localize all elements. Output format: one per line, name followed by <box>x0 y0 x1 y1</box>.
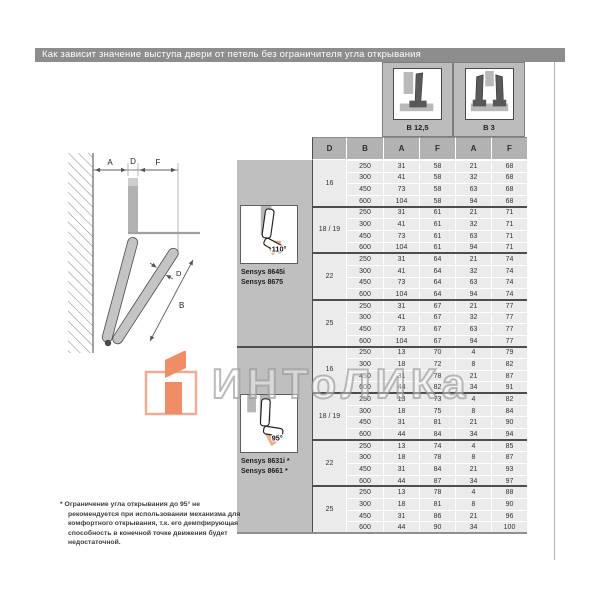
table-row: 3001872882 <box>347 358 527 370</box>
table-row: 25031672177 <box>347 300 527 312</box>
table-cell: 32 <box>456 218 492 230</box>
table-cell: 250 <box>347 253 384 265</box>
table-cell: 67 <box>420 300 456 312</box>
table-row: 30041613271 <box>347 218 527 230</box>
table-row: 45031812190 <box>347 416 527 428</box>
d-group-cell: 16 <box>312 160 347 207</box>
table-cell: 21 <box>456 416 492 428</box>
legend-label: B 3 <box>454 123 524 132</box>
table-cell: 63 <box>456 277 492 289</box>
table-cell: 32 <box>456 172 492 184</box>
table-cell: 63 <box>456 323 492 335</box>
hinge-models-95: Sensys 8631i * Sensys 8661 * <box>241 457 290 477</box>
table-row: 25031612171 <box>347 207 527 219</box>
table-cell: 250 <box>347 440 384 452</box>
table-cell: 75 <box>420 405 456 417</box>
table-cell: 300 <box>347 265 384 277</box>
table-cell: 31 <box>384 207 420 219</box>
table-row: 30041583268 <box>347 172 527 184</box>
table-cell: 73 <box>420 393 456 405</box>
page-margin-rule <box>554 62 555 560</box>
table-cell: 63 <box>456 183 492 195</box>
dim-label-f: F <box>156 158 161 167</box>
table-cell: 68 <box>492 160 527 172</box>
table-row: 2501370479 <box>347 347 527 359</box>
table-cell: 93 <box>492 463 527 475</box>
catalog-page: Как зависит значение выступа двери от пе… <box>0 0 600 600</box>
table-cell: 31 <box>384 463 420 475</box>
wall-hatch <box>68 153 93 353</box>
dim-label-d-top: D <box>130 157 136 166</box>
hinge-info-110: 110° Sensys 8645i Sensys 8675 <box>237 160 312 347</box>
table-cell: 64 <box>420 265 456 277</box>
table-cell: 84 <box>492 405 527 417</box>
table-cell: 18 <box>384 498 420 510</box>
table-cell: 67 <box>420 312 456 324</box>
group-separator <box>312 299 527 301</box>
table-cell: 72 <box>420 358 456 370</box>
table-cell: 73 <box>384 183 420 195</box>
table-cell: 78 <box>420 370 456 382</box>
group-separator <box>312 252 527 254</box>
table-cell: 8 <box>456 498 492 510</box>
table-bottom-border <box>237 532 527 534</box>
d-group-cell: 18 / 19 <box>312 393 347 440</box>
table-cell: 21 <box>456 207 492 219</box>
table-cell: 63 <box>456 230 492 242</box>
table-row: 30041673277 <box>347 312 527 324</box>
table-cell: 450 <box>347 370 384 382</box>
table-cell: 41 <box>384 172 420 184</box>
table-cell: 74 <box>492 265 527 277</box>
dim-label-d-door: D <box>176 269 182 278</box>
table-cell: 13 <box>384 486 420 498</box>
table-cell: 71 <box>492 230 527 242</box>
dim-label-a: A <box>107 158 113 167</box>
dim-label-b: B <box>179 301 184 310</box>
table-cell: 58 <box>420 172 456 184</box>
legend-label: B 12,5 <box>383 123 452 132</box>
table-cell: 68 <box>492 183 527 195</box>
table-cell: 81 <box>420 498 456 510</box>
table-row: 2501374485 <box>347 440 527 452</box>
table-cell: 13 <box>384 393 420 405</box>
table-row: 30041643274 <box>347 265 527 277</box>
table-cell: 88 <box>492 486 527 498</box>
header-cell-f1: F <box>420 137 456 160</box>
header-cell-a2: A <box>456 137 492 160</box>
table-cell: 4 <box>456 440 492 452</box>
table-header-row: D B A F A F <box>237 137 527 160</box>
table-cell: 450 <box>347 277 384 289</box>
model-name: Sensys 8645i <box>241 268 285 278</box>
table-cell: 61 <box>420 230 456 242</box>
table-cell: 64 <box>420 277 456 289</box>
table-row: 45073616371 <box>347 230 527 242</box>
table-cell: 8 <box>456 405 492 417</box>
table-cell: 250 <box>347 486 384 498</box>
protrusion-table: D B A F A F 110° <box>237 137 527 533</box>
header-cell-a1: A <box>384 137 420 160</box>
table-row: 45073586368 <box>347 183 527 195</box>
table-cell: 77 <box>492 312 527 324</box>
group-separator <box>312 392 527 394</box>
legend-box-b3: B 3 <box>453 62 525 137</box>
table-cell: 31 <box>384 370 420 382</box>
table-cell: 85 <box>492 440 527 452</box>
table-cell: 18 <box>384 405 420 417</box>
table-cell: 82 <box>492 358 527 370</box>
table-cell: 70 <box>420 347 456 359</box>
footnote: * Ограничение угла открывания до 95° не … <box>60 500 250 548</box>
angle-label-110: 110° <box>272 244 287 253</box>
table-cell: 74 <box>420 440 456 452</box>
table-cell: 82 <box>492 393 527 405</box>
table-cell: 8 <box>456 451 492 463</box>
model-name: Sensys 8661 * <box>241 467 290 477</box>
table-row: 45073676377 <box>347 323 527 335</box>
table-cell: 21 <box>456 300 492 312</box>
table-cell: 21 <box>456 463 492 475</box>
table-cell: 73 <box>384 230 420 242</box>
watermark-logo-icon <box>140 351 202 417</box>
group-separator <box>237 346 527 348</box>
closed-door <box>128 178 138 233</box>
d-group-cell: 16 <box>312 347 347 394</box>
table-cell: 450 <box>347 510 384 522</box>
table-cell: 450 <box>347 323 384 335</box>
group-separator <box>312 206 527 208</box>
table-cell: 450 <box>347 463 384 475</box>
table-cell: 78 <box>420 486 456 498</box>
double-overlay-door-icon <box>465 68 514 120</box>
table-cell: 90 <box>492 498 527 510</box>
table-cell: 68 <box>492 172 527 184</box>
table-cell: 250 <box>347 347 384 359</box>
table-cell: 71 <box>492 207 527 219</box>
table-cell: 78 <box>420 451 456 463</box>
d-group-cell: 22 <box>312 253 347 300</box>
table-cell: 58 <box>420 160 456 172</box>
table-cell: 21 <box>456 370 492 382</box>
table-row: 45031782187 <box>347 370 527 382</box>
table-cell: 300 <box>347 498 384 510</box>
table-cell: 300 <box>347 218 384 230</box>
table-cell: 4 <box>456 347 492 359</box>
table-cell: 31 <box>384 416 420 428</box>
table-cell: 250 <box>347 160 384 172</box>
table-cell: 81 <box>420 416 456 428</box>
table-cell: 58 <box>420 183 456 195</box>
table-cell: 71 <box>492 218 527 230</box>
table-cell: 31 <box>384 300 420 312</box>
d-group-cell: 25 <box>312 300 347 347</box>
table-cell: 64 <box>420 253 456 265</box>
table-cell: 77 <box>492 300 527 312</box>
table-cell: 74 <box>492 253 527 265</box>
header-cell-b: B <box>347 137 384 160</box>
d-group-cell: 25 <box>312 486 347 533</box>
table-cell: 8 <box>456 358 492 370</box>
table-cell: 18 <box>384 451 420 463</box>
table-cell: 86 <box>420 510 456 522</box>
table-cell: 4 <box>456 393 492 405</box>
table-cell: 87 <box>492 370 527 382</box>
d-group-cell: 22 <box>312 440 347 487</box>
d-group-cell: 18 / 19 <box>312 207 347 254</box>
hinge-icon-110: 110° <box>240 205 298 264</box>
table-cell: 41 <box>384 218 420 230</box>
model-name: Sensys 8675 <box>241 278 285 288</box>
table-row: 45031842193 <box>347 463 527 475</box>
table-cell: 96 <box>492 510 527 522</box>
table-cell: 87 <box>492 451 527 463</box>
table-cell: 250 <box>347 207 384 219</box>
table-row: 25031582168 <box>347 160 527 172</box>
table-cell: 4 <box>456 486 492 498</box>
table-row: 45031862196 <box>347 510 527 522</box>
header-cell-f2: F <box>492 137 527 160</box>
table-cell: 450 <box>347 416 384 428</box>
table-cell: 32 <box>456 312 492 324</box>
table-cell: 300 <box>347 172 384 184</box>
page-title: Как зависит значение выступа двери от пе… <box>35 48 565 62</box>
table-cell: 73 <box>384 323 420 335</box>
legend-box-b125: B 12,5 <box>382 62 453 137</box>
table-row: 3001878887 <box>347 451 527 463</box>
table-cell: 61 <box>420 207 456 219</box>
table-row: 45073646374 <box>347 277 527 289</box>
table-cell: 32 <box>456 265 492 277</box>
header-cell-d: D <box>312 137 347 160</box>
table-row: 3001875884 <box>347 405 527 417</box>
table-cell: 300 <box>347 312 384 324</box>
group-separator <box>312 485 527 487</box>
table-cell: 18 <box>384 358 420 370</box>
table-cell: 21 <box>456 510 492 522</box>
table-cell: 300 <box>347 405 384 417</box>
single-overlay-door-icon <box>393 68 442 120</box>
table-cell: 21 <box>456 253 492 265</box>
angle-label-95: 95° <box>272 433 283 442</box>
table-cell: 21 <box>456 160 492 172</box>
table-cell: 41 <box>384 265 420 277</box>
hinge-icon-95: 95° <box>240 394 298 453</box>
table-cell: 84 <box>420 463 456 475</box>
table-cell: 300 <box>347 358 384 370</box>
door-protrusion-diagram: A D F B D <box>60 145 245 360</box>
hinge-pivot <box>105 340 111 346</box>
table-cell: 90 <box>492 416 527 428</box>
table-cell: 31 <box>384 510 420 522</box>
table-cell: 450 <box>347 230 384 242</box>
table-cell: 74 <box>492 277 527 289</box>
table-cell: 67 <box>420 323 456 335</box>
table-cell: 13 <box>384 440 420 452</box>
table-cell: 13 <box>384 347 420 359</box>
table-cell: 41 <box>384 312 420 324</box>
table-cell: 250 <box>347 300 384 312</box>
table-row: 2501378488 <box>347 486 527 498</box>
table-cell: 300 <box>347 451 384 463</box>
table-cell: 79 <box>492 347 527 359</box>
table-cell: 61 <box>420 218 456 230</box>
table-cell: 77 <box>492 323 527 335</box>
table-row: 2501373482 <box>347 393 527 405</box>
table-cell: 450 <box>347 183 384 195</box>
table-row: 3001881890 <box>347 498 527 510</box>
table-cell: 31 <box>384 160 420 172</box>
table-cell: 31 <box>384 253 420 265</box>
table-cell: 250 <box>347 393 384 405</box>
table-row: 25031642174 <box>347 253 527 265</box>
table-cell: 73 <box>384 277 420 289</box>
group-separator <box>312 439 527 441</box>
hinge-models-110: Sensys 8645i Sensys 8675 <box>241 268 285 288</box>
model-name: Sensys 8631i * <box>241 457 290 467</box>
